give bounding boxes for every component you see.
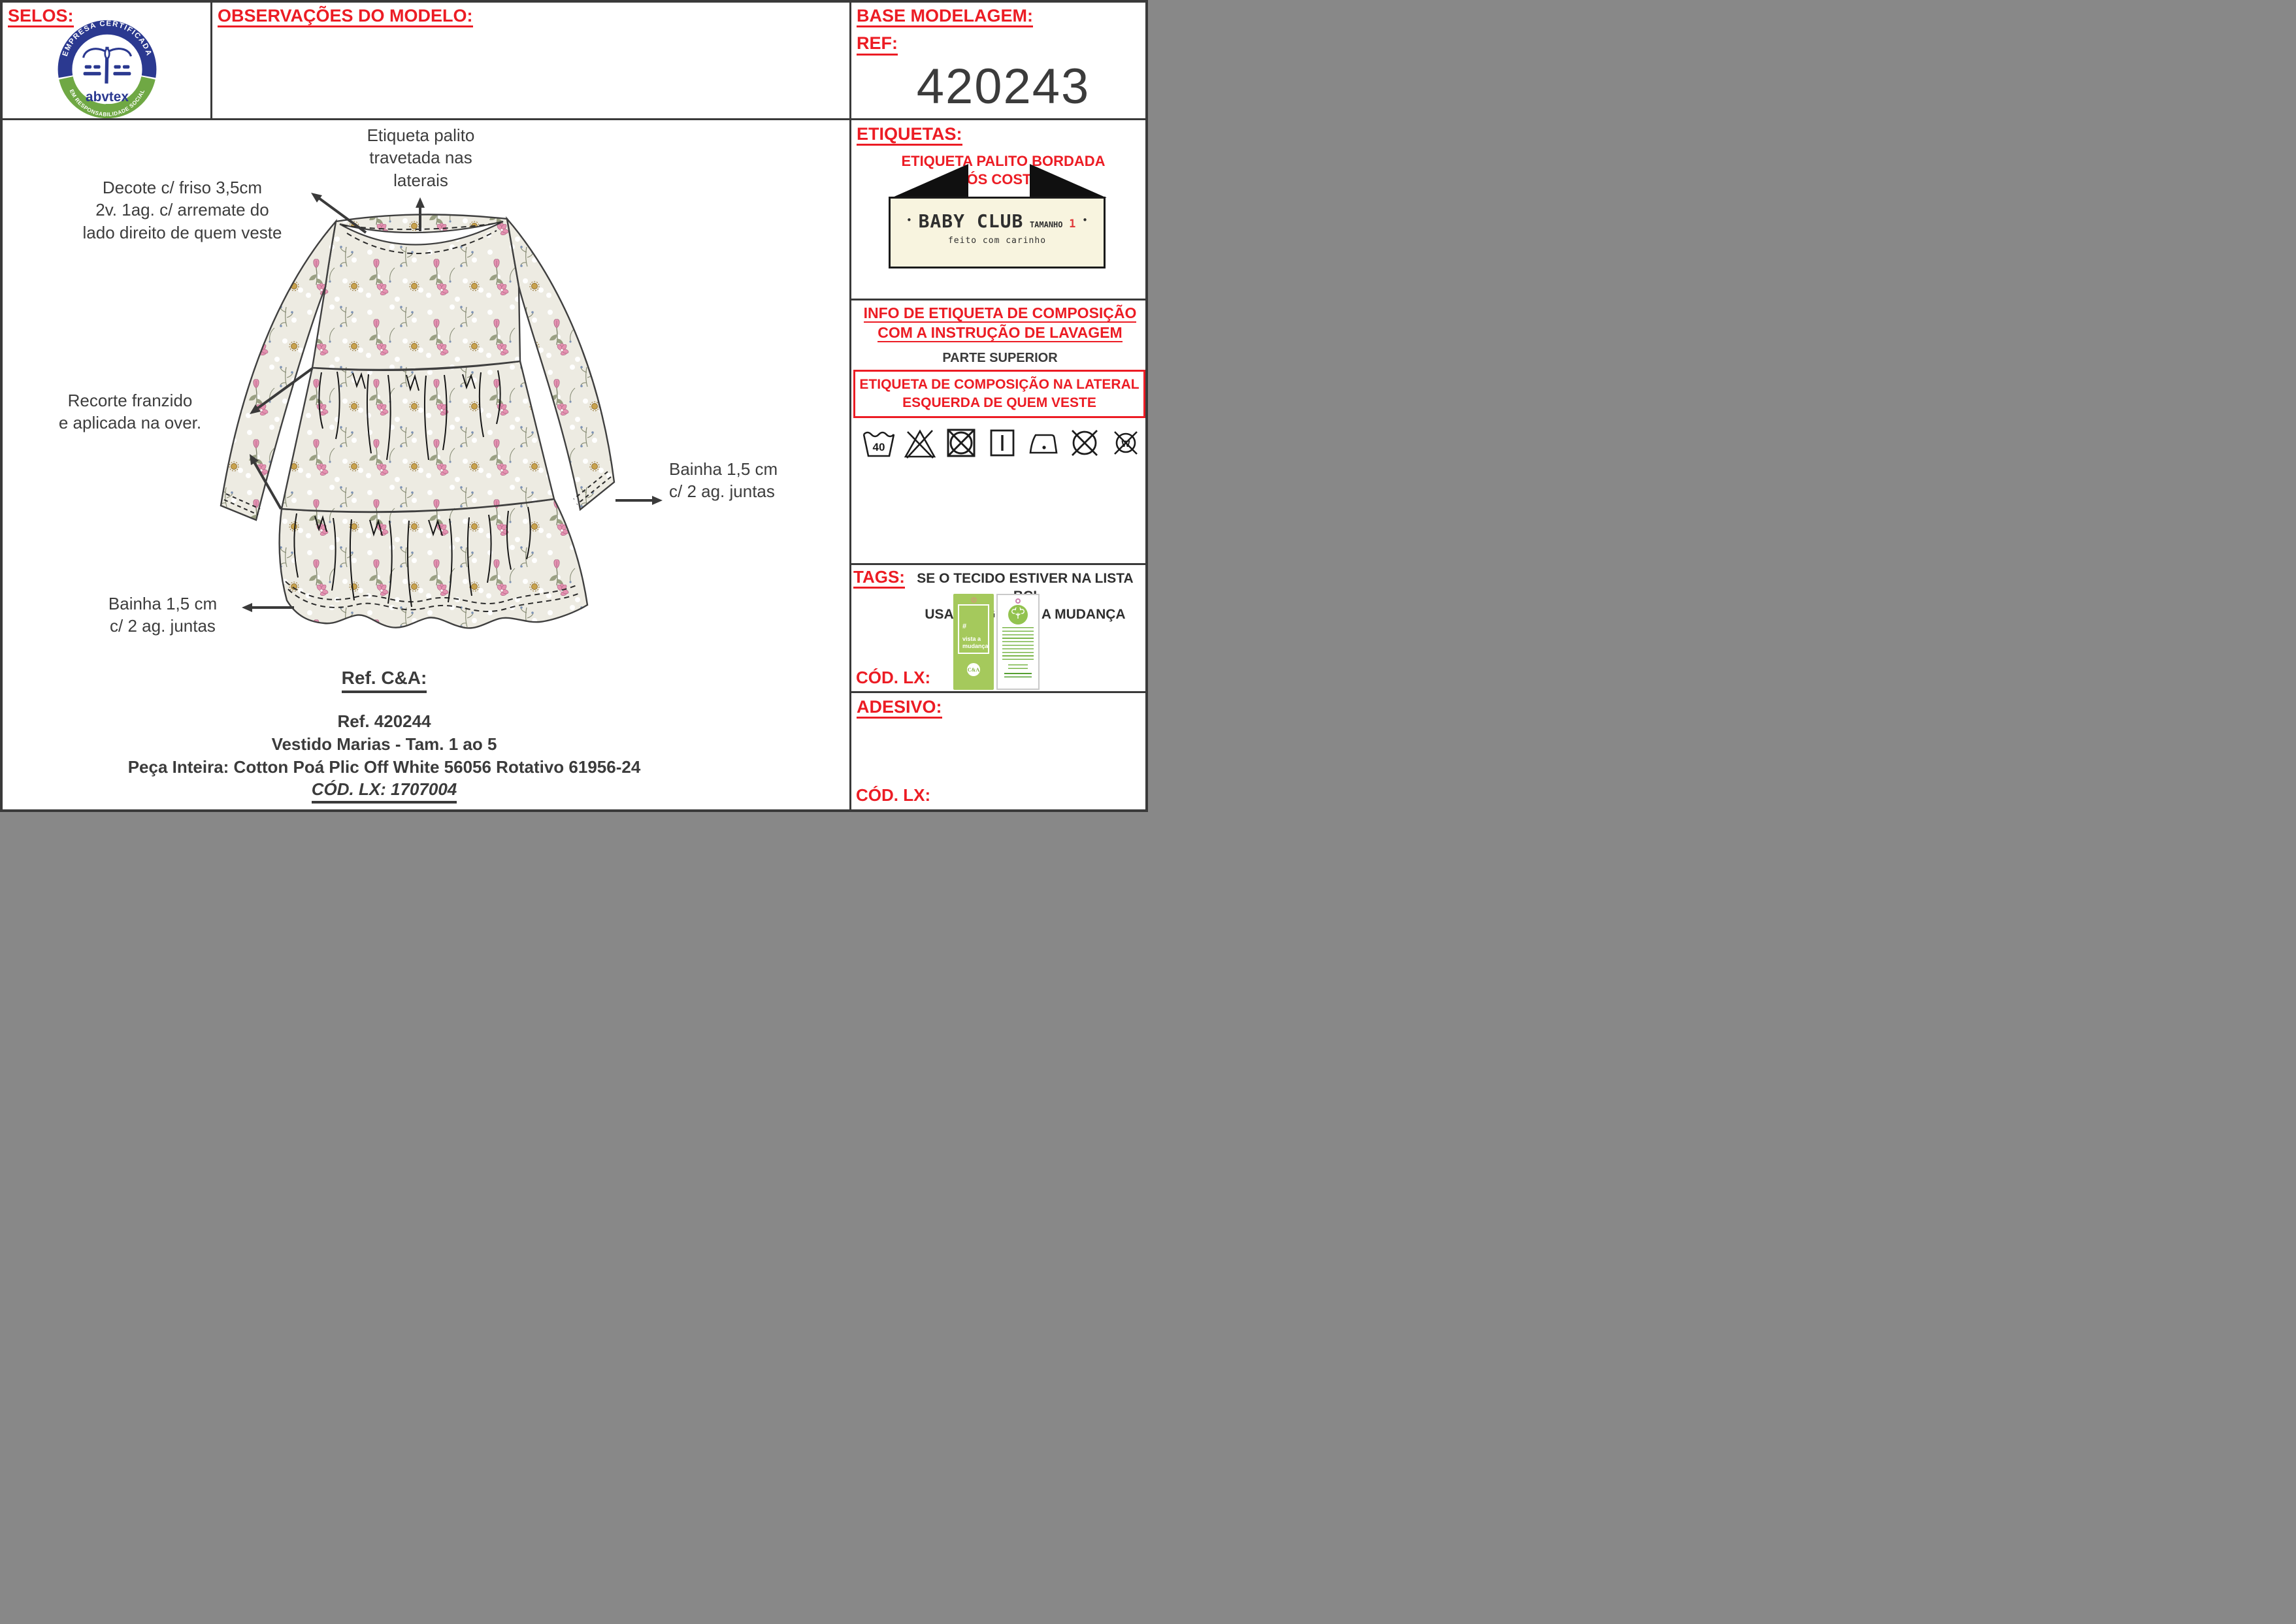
gather-marks [319, 370, 500, 460]
ref-cea-title: Ref. C&A: [342, 668, 427, 693]
wash-40-icon: 40 [862, 425, 896, 461]
cuff-stitching [224, 472, 611, 515]
cotton-icon [1008, 605, 1028, 625]
divider-main-rightcol [849, 3, 851, 809]
iron-low-icon [1026, 425, 1060, 461]
dress-bodice [312, 214, 520, 370]
observacoes-cell: OBSERVAÇÕES DO MODELO: [212, 3, 860, 31]
cea-logo: C&A [967, 663, 980, 676]
tags-title: TAGS: [853, 568, 905, 589]
label-brand: BABY CLUB [919, 210, 1024, 232]
parte-superior-label: PARTE SUPERIOR [853, 351, 1147, 366]
label-ribbon-fold-left [891, 164, 968, 198]
annotation-bainha-right: Bainha 1,5 cm c/ 2 ag. juntas [669, 458, 859, 503]
abvtex-logo: EMPRESA CERTIFICADA EM RESPONSABILIDADE … [56, 18, 158, 120]
ref-cea-cod-lx: CÓD. LX: 1707004 [312, 779, 457, 804]
composicao-box-line-1: ETIQUETA DE COMPOSIÇÃO NA LATERAL [857, 376, 1142, 394]
do-not-wet-clean-icon: W [1109, 425, 1143, 461]
bainha-right-arrow [615, 496, 663, 505]
divider-selos-obs [210, 3, 212, 118]
drip-dry-icon [985, 425, 1019, 461]
gather-marks [294, 507, 530, 607]
neckline-stitching [342, 223, 500, 253]
info-title-2: COM A INSTRUÇÃO DE LAVAGEM [877, 325, 1122, 342]
sustainability-tag-back [996, 594, 1040, 690]
do-not-bleach-icon [903, 425, 937, 461]
ref-label: REF: [857, 34, 898, 55]
annotation-decote: Decote c/ friso 3,5cm 2v. 1ag. c/ arrema… [65, 176, 300, 244]
dress-bottom-tier [280, 499, 587, 628]
green-tag-line-1: vista a [962, 636, 981, 642]
tech-pack-sheet: SELOS: EMPRESA CERTIFICADA EM RESPONSABI… [0, 0, 1148, 812]
annotation-bainha-left: Bainha 1,5 cm c/ 2 ag. juntas [81, 593, 244, 638]
base-modelagem-title: BASE MODELAGEM: [857, 7, 1033, 27]
label-tagline: feito com carinho [891, 236, 1104, 246]
etiquetas-title: ETIQUETAS: [857, 125, 962, 146]
divider-top-row [3, 118, 1145, 120]
tags-cod-lx-label: CÓD. LX: [856, 668, 930, 688]
adesivo-cell: ADESIVO: [851, 694, 1148, 723]
ref-value: 420243 [857, 58, 1148, 115]
divider-info-tags [849, 563, 1145, 565]
armhole-seams [325, 219, 519, 287]
tag-fine-print [1008, 664, 1028, 670]
dress-middle-tier [282, 361, 554, 512]
vista-a-mudanca-tag: # vista a mudança C&A [953, 594, 994, 690]
label-bullet-right: • [1082, 214, 1088, 226]
baby-club-label: • BABY CLUB TAMANHO 1 • feito com carinh… [889, 161, 1109, 274]
composicao-red-box: ETIQUETA DE COMPOSIÇÃO NA LATERAL ESQUER… [853, 370, 1145, 419]
recorte-arrow-lower [250, 454, 281, 509]
neck-opening [340, 221, 503, 245]
adesivo-cod-lx-label: CÓD. LX: [856, 785, 930, 805]
ref-cea-lines: Ref. 420244 Vestido Marias - Tam. 1 ao 5… [86, 710, 682, 778]
etiqueta-palito-arrow [416, 197, 425, 231]
ref-cea-block: Ref. C&A: Ref. 420244 Vestido Marias - T… [86, 668, 682, 804]
annotation-etiqueta-palito: Etiqueta palito travetada nas laterais [323, 124, 519, 191]
info-composicao-cell: INFO DE ETIQUETA DE COMPOSIÇÃO COM A INS… [853, 304, 1145, 418]
composicao-box-line-2: ESQUERDA DE QUEM VESTE [857, 394, 1142, 412]
green-tag-line-2: mudança [962, 643, 989, 649]
label-ribbon-fold-right [1030, 164, 1107, 198]
label-size-value: 1 [1069, 218, 1075, 231]
green-tag-frame: # vista a mudança [958, 604, 989, 654]
recorte-arrow-upper [250, 368, 312, 414]
label-bullet-left: • [906, 214, 912, 226]
dress-sleeves [221, 219, 614, 520]
svg-text:40: 40 [872, 441, 885, 453]
tag-hole-icon [1015, 598, 1021, 604]
base-modelagem-cell: BASE MODELAGEM: REF: 420243 [851, 3, 1148, 119]
abvtex-logo-icon: EMPRESA CERTIFICADA EM RESPONSABILIDADE … [56, 18, 158, 120]
decote-arrow [311, 193, 366, 233]
label-size-label: TAMANHO [1030, 220, 1063, 229]
do-not-tumble-dry-icon [944, 425, 978, 461]
abvtex-wordmark: abvtex [86, 89, 129, 105]
green-tag-hashtag: # [962, 623, 989, 632]
tag-fine-print [1004, 673, 1032, 679]
bainha-left-arrow [242, 603, 294, 612]
hem-stitching [286, 581, 580, 611]
tag-hole-icon [971, 597, 977, 603]
observacoes-title: OBSERVAÇÕES DO MODELO: [218, 7, 473, 27]
divider-tags-adesivo [849, 691, 1145, 693]
care-symbols-row: 40 [856, 425, 1148, 461]
label-bar: • BABY CLUB TAMANHO 1 • feito com carinh… [889, 197, 1106, 268]
info-title-1: INFO DE ETIQUETA DE COMPOSIÇÃO [864, 305, 1137, 323]
annotation-recorte: Recorte franzido e aplicada na over. [22, 389, 238, 434]
annotation-arrows [242, 193, 663, 612]
adesivo-title: ADESIVO: [857, 698, 942, 719]
tag-fine-print [1002, 627, 1034, 661]
divider-etiquetas-info [849, 299, 1145, 300]
do-not-dry-clean-icon [1068, 425, 1102, 461]
svg-text:W: W [1121, 438, 1130, 449]
